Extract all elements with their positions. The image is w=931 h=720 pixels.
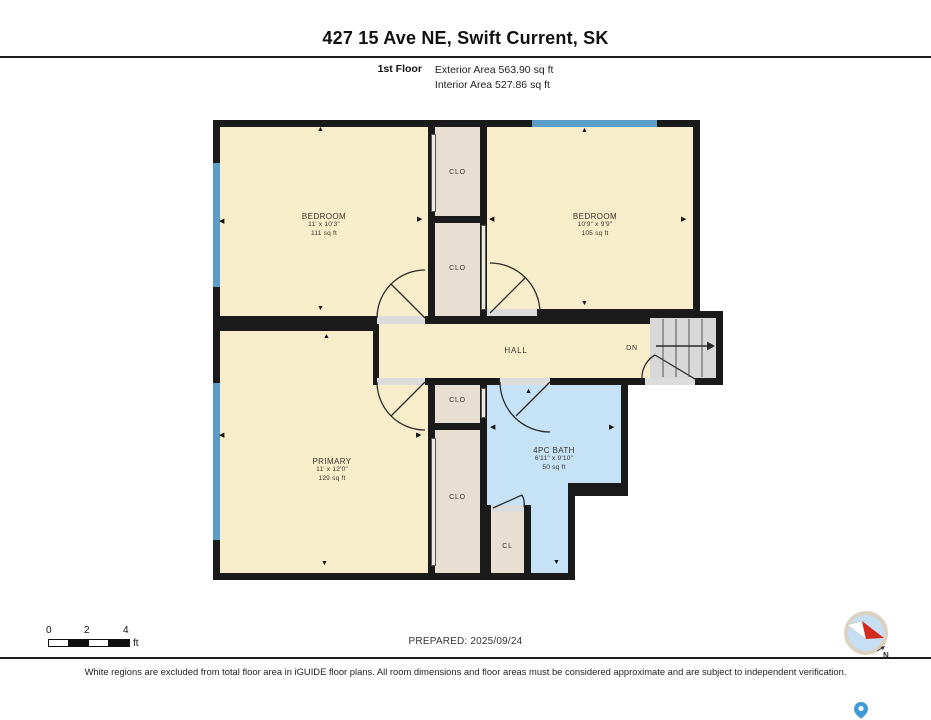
closet-label: CLO	[435, 169, 480, 176]
dim-arrow-left: ◀	[219, 218, 224, 226]
cl-label: CL	[491, 543, 524, 550]
primary-label: PRIMARY 11' x 12'0" 129 sq ft	[282, 457, 382, 483]
closet-label: CLO	[435, 494, 480, 501]
scale-tick-0: 0	[46, 625, 52, 636]
room-dims: 11' x 10'3"	[274, 221, 374, 230]
closet-label: CLO	[435, 397, 480, 404]
dim-arrow-up: ▲	[317, 126, 324, 134]
room-name: BEDROOM	[545, 212, 645, 221]
closet-label: CLO	[435, 265, 480, 272]
room-area: 111 sq ft	[274, 230, 374, 239]
closet-small	[435, 385, 480, 423]
compass-icon: N	[841, 608, 893, 660]
dim-arrow-right: ▶	[416, 432, 421, 440]
disclaimer-text: White regions are excluded from total fl…	[0, 666, 931, 677]
dim-arrow-down: ▼	[317, 305, 324, 313]
dim-arrow-left: ◀	[489, 216, 494, 224]
floor-info: 1st Floor Exterior Area 563.90 sq ft Int…	[0, 63, 931, 93]
hall-label: HALL	[486, 346, 546, 355]
footer-divider	[0, 657, 931, 659]
window-bedroom2	[532, 120, 657, 127]
dim-arrow-right: ▶	[609, 424, 614, 432]
prepared-date: PREPARED: 2025/09/24	[0, 636, 931, 647]
header-divider	[0, 56, 931, 58]
floor-label: 1st Floor	[378, 63, 422, 93]
closet-tall	[435, 430, 480, 573]
dim-arrow-left: ◀	[490, 424, 495, 432]
window-primary	[213, 383, 220, 540]
door-sill-primary	[377, 378, 425, 385]
dim-arrow-up: ▲	[323, 333, 330, 341]
room-dims: 10'9" x 9'9"	[545, 221, 645, 230]
dim-arrow-right: ▶	[681, 216, 686, 224]
room-name: BEDROOM	[274, 212, 374, 221]
floor-areas: Exterior Area 563.90 sq ft Interior Area…	[435, 63, 553, 93]
room-dims: 6'11" x 9'10"	[504, 455, 604, 464]
dim-arrow-down: ▼	[581, 300, 588, 308]
door-sill-bath	[500, 378, 550, 385]
stairs-dn-label: DN	[618, 345, 646, 352]
room-area: 105 sq ft	[545, 230, 645, 239]
dim-arrow-down: ▼	[553, 559, 560, 567]
room-dims: 11' x 12'0"	[282, 466, 382, 475]
sliding-door	[431, 438, 436, 566]
scale-tick-2: 2	[84, 625, 90, 636]
room-area: 50 sq ft	[504, 464, 604, 473]
sliding-door	[481, 225, 486, 310]
bath-label: 4PC BATH 6'11" x 9'10" 50 sq ft	[504, 446, 604, 472]
floor-plan: BEDROOM 11' x 10'3" 111 sq ft BEDROOM 10…	[213, 120, 725, 582]
floor-plan-page: 427 15 Ave NE, Swift Current, SK 1st Flo…	[0, 0, 931, 720]
dim-arrow-left: ◀	[219, 432, 224, 440]
door-sill-cl	[491, 505, 524, 512]
exterior-area: Exterior Area 563.90 sq ft	[435, 63, 553, 78]
scale-tick-4: 4	[123, 625, 129, 636]
interior-area: Interior Area 527.86 sq ft	[435, 78, 553, 93]
dim-arrow-up: ▲	[581, 127, 588, 135]
bedroom1-label: BEDROOM 11' x 10'3" 111 sq ft	[274, 212, 374, 238]
room-name: 4PC BATH	[504, 446, 604, 455]
dim-arrow-down: ▼	[321, 560, 328, 568]
bedroom2-label: BEDROOM 10'9" x 9'9" 105 sq ft	[545, 212, 645, 238]
door-sill-bedroom2	[487, 309, 537, 316]
dim-arrow-up: ▲	[525, 388, 532, 396]
page-title: 427 15 Ave NE, Swift Current, SK	[0, 28, 931, 49]
dim-arrow-right: ▶	[417, 216, 422, 224]
door-sill-stairs	[645, 378, 695, 385]
sliding-door	[481, 388, 486, 418]
door-sill-bedroom1	[377, 316, 425, 324]
map-pin-icon	[853, 701, 869, 719]
room-area: 129 sq ft	[282, 475, 382, 484]
room-name: PRIMARY	[282, 457, 382, 466]
stairs-floor	[650, 318, 716, 378]
